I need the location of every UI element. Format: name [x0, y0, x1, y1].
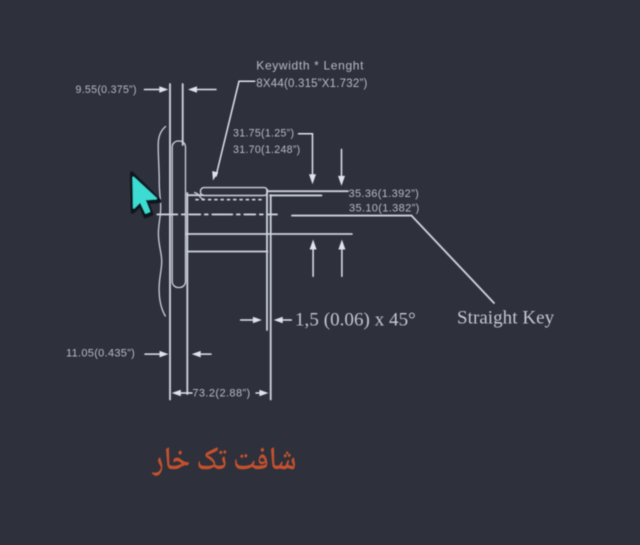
- svg-text:31.75(1.25”): 31.75(1.25”): [233, 127, 294, 139]
- svg-text:8X44(0.315”X1.732”): 8X44(0.315”X1.732”): [256, 78, 367, 90]
- svg-text:31.70(1.248”): 31.70(1.248”): [233, 144, 301, 156]
- svg-text:11.05(0.435”): 11.05(0.435”): [66, 347, 135, 359]
- svg-text:9.55(0.375”): 9.55(0.375”): [76, 84, 137, 96]
- svg-text:Keywidth * Lenght: Keywidth * Lenght: [256, 59, 364, 73]
- svg-text:1,5 (0.06) x 45°: 1,5 (0.06) x 45°: [295, 310, 416, 331]
- svg-text:Straight Key: Straight Key: [457, 308, 555, 329]
- svg-text:35.10(1.382”): 35.10(1.382”): [349, 203, 420, 215]
- svg-text:73.2(2.88”): 73.2(2.88”): [192, 388, 250, 400]
- svg-text:35.36(1.392”): 35.36(1.392”): [349, 188, 420, 200]
